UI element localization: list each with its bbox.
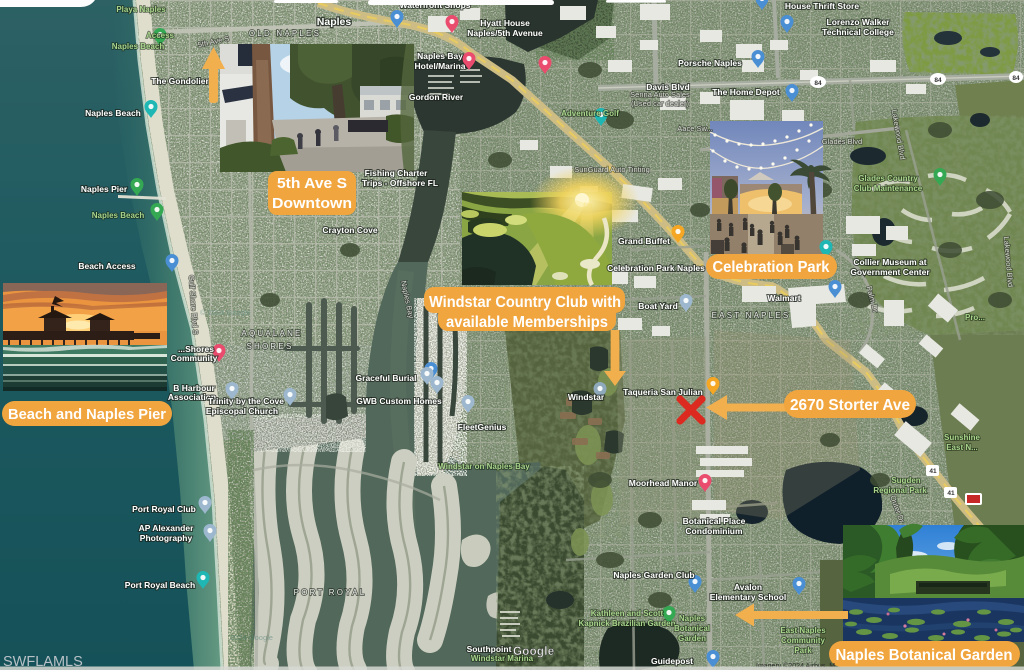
svg-text:Naples Beach: Naples Beach bbox=[92, 211, 145, 220]
svg-text:Pro...: Pro... bbox=[965, 313, 985, 322]
svg-text:Hotel/Marina: Hotel/Marina bbox=[414, 61, 465, 71]
svg-text:Naples/5th Avenue: Naples/5th Avenue bbox=[467, 28, 543, 38]
svg-text:Beach Access: Beach Access bbox=[78, 261, 136, 271]
svg-text:Community: Community bbox=[171, 353, 218, 363]
svg-text:Naples Botanical Garden: Naples Botanical Garden bbox=[836, 647, 1013, 664]
svg-text:Aace Sw...: Aace Sw... bbox=[677, 124, 712, 133]
svg-text:Downtown: Downtown bbox=[272, 195, 352, 212]
svg-text:Glades Country: Glades Country bbox=[858, 174, 918, 183]
svg-text:Kapnick Brazilian Garden: Kapnick Brazilian Garden bbox=[579, 619, 676, 628]
svg-text:Collier Museum at: Collier Museum at bbox=[853, 257, 926, 267]
svg-text:Graceful Burial: Graceful Burial bbox=[356, 373, 417, 383]
svg-text:Club Maintenance: Club Maintenance bbox=[854, 184, 923, 193]
svg-text:Beach and Naples Pier: Beach and Naples Pier bbox=[8, 406, 166, 423]
svg-text:Glades Blvd: Glades Blvd bbox=[822, 137, 862, 146]
svg-text:Porsche Naples: Porsche Naples bbox=[678, 58, 742, 68]
svg-text:Photography: Photography bbox=[140, 533, 193, 543]
svg-text:Technical College: Technical College bbox=[822, 27, 894, 37]
svg-text:Trips - Offshore FL: Trips - Offshore FL bbox=[362, 178, 438, 188]
svg-text:OLD NAPLES: OLD NAPLES bbox=[249, 29, 321, 38]
svg-text:Trinity by the Cove: Trinity by the Cove bbox=[208, 396, 284, 406]
svg-text:Southpoint: Southpoint bbox=[467, 644, 512, 654]
svg-text:Avalon: Avalon bbox=[734, 582, 762, 592]
svg-text:Port Royal Club: Port Royal Club bbox=[132, 504, 196, 514]
svg-text:Playa Naples: Playa Naples bbox=[116, 5, 166, 14]
svg-text:House Thrift Store: House Thrift Store bbox=[785, 1, 859, 11]
svg-text:The Home Depot: The Home Depot bbox=[712, 87, 780, 97]
svg-text:EAST NAPLES: EAST NAPLES bbox=[712, 311, 791, 320]
svg-text:Park: Park bbox=[794, 646, 812, 655]
svg-text:Naples: Naples bbox=[679, 614, 706, 623]
svg-text:Kathleen and Scott: Kathleen and Scott bbox=[591, 609, 664, 618]
svg-text:Elementary School: Elementary School bbox=[710, 592, 787, 602]
svg-text:(Used car dealer): (Used car dealer) bbox=[631, 99, 689, 108]
svg-text:Gordon River: Gordon River bbox=[409, 92, 464, 102]
svg-text:Naples Garden Club: Naples Garden Club bbox=[613, 570, 694, 580]
svg-text:Botanical Place: Botanical Place bbox=[683, 516, 746, 526]
svg-text:2670 Storter Ave: 2670 Storter Ave bbox=[790, 397, 910, 414]
svg-text:Naples Pier: Naples Pier bbox=[81, 184, 128, 194]
svg-text:Senna Auto Sales: Senna Auto Sales bbox=[630, 90, 690, 99]
svg-text:Windstar Country Club with: Windstar Country Club with bbox=[429, 294, 621, 311]
svg-text:Community: Community bbox=[781, 636, 826, 645]
svg-text:AP Alexander: AP Alexander bbox=[139, 523, 194, 533]
svg-text:Sunshine: Sunshine bbox=[944, 433, 981, 442]
svg-text:The Gondolier: The Gondolier bbox=[151, 76, 209, 86]
svg-text:Lorenzo Walker: Lorenzo Walker bbox=[827, 17, 891, 27]
svg-text:Garden: Garden bbox=[678, 634, 706, 643]
svg-text:Naples Beach: Naples Beach bbox=[85, 108, 141, 118]
svg-text:Celebration Park Naples: Celebration Park Naples bbox=[607, 263, 705, 273]
svg-text:Guidepost: Guidepost bbox=[651, 656, 693, 666]
svg-text:Naples Bay: Naples Bay bbox=[417, 51, 463, 61]
svg-text:© 2024 Google: © 2024 Google bbox=[200, 308, 251, 317]
svg-text:Government Center: Government Center bbox=[850, 267, 930, 277]
svg-text:Moorhead Manor: Moorhead Manor bbox=[629, 478, 698, 488]
svg-text:Walmart: Walmart bbox=[767, 293, 800, 303]
svg-text:Taqueria San Julian: Taqueria San Julian bbox=[623, 387, 703, 397]
svg-text:Grand Buffet: Grand Buffet bbox=[618, 236, 670, 246]
svg-text:available Memberships: available Memberships bbox=[446, 314, 608, 331]
svg-text:Episcopal Church: Episcopal Church bbox=[206, 406, 278, 416]
svg-text:Condominium: Condominium bbox=[685, 526, 743, 536]
svg-text:Adventure Golf: Adventure Golf bbox=[561, 109, 619, 118]
svg-text:Sugden: Sugden bbox=[891, 476, 920, 485]
svg-text:Port Royal Beach: Port Royal Beach bbox=[125, 580, 195, 590]
svg-text:Naples: Naples bbox=[317, 16, 352, 28]
svg-text:Naples Beach: Naples Beach bbox=[112, 42, 165, 51]
svg-text:5th Ave S: 5th Ave S bbox=[277, 175, 347, 192]
svg-text:84: 84 bbox=[934, 77, 942, 84]
svg-text:Windstar on Naples Bay: Windstar on Naples Bay bbox=[438, 462, 530, 471]
svg-text:Crayton Cove: Crayton Cove bbox=[322, 225, 378, 235]
svg-text:84: 84 bbox=[1012, 75, 1020, 82]
svg-text:41: 41 bbox=[947, 490, 955, 497]
svg-text:East Naples: East Naples bbox=[780, 626, 826, 635]
svg-text:Windstar: Windstar bbox=[568, 392, 605, 402]
svg-text:Boat Yard: Boat Yard bbox=[638, 301, 678, 311]
svg-text:Google: Google bbox=[513, 646, 554, 658]
svg-text:Fishing Charter: Fishing Charter bbox=[365, 168, 429, 178]
svg-text:Hyatt House: Hyatt House bbox=[480, 18, 530, 28]
svg-text:PORT ROYAL: PORT ROYAL bbox=[294, 588, 367, 597]
svg-text:SHORES: SHORES bbox=[247, 342, 294, 351]
svg-text:Access: Access bbox=[146, 31, 175, 40]
svg-text:East N...: East N... bbox=[946, 443, 978, 452]
svg-text:41: 41 bbox=[929, 468, 937, 475]
svg-text:2024 Google: 2024 Google bbox=[230, 633, 273, 642]
svg-text:GWB Custom Homes: GWB Custom Homes bbox=[356, 396, 442, 406]
svg-text:Celebration Park: Celebration Park bbox=[713, 259, 830, 276]
svg-text:84: 84 bbox=[814, 80, 822, 87]
svg-text:Botanical: Botanical bbox=[674, 624, 710, 633]
svg-text:Regional Park: Regional Park bbox=[873, 486, 927, 495]
svg-text:SunGuard Auto Tinting: SunGuard Auto Tinting bbox=[574, 165, 649, 174]
svg-text:FleetGenius: FleetGenius bbox=[458, 422, 507, 432]
svg-text:AQUALANE: AQUALANE bbox=[241, 329, 302, 338]
